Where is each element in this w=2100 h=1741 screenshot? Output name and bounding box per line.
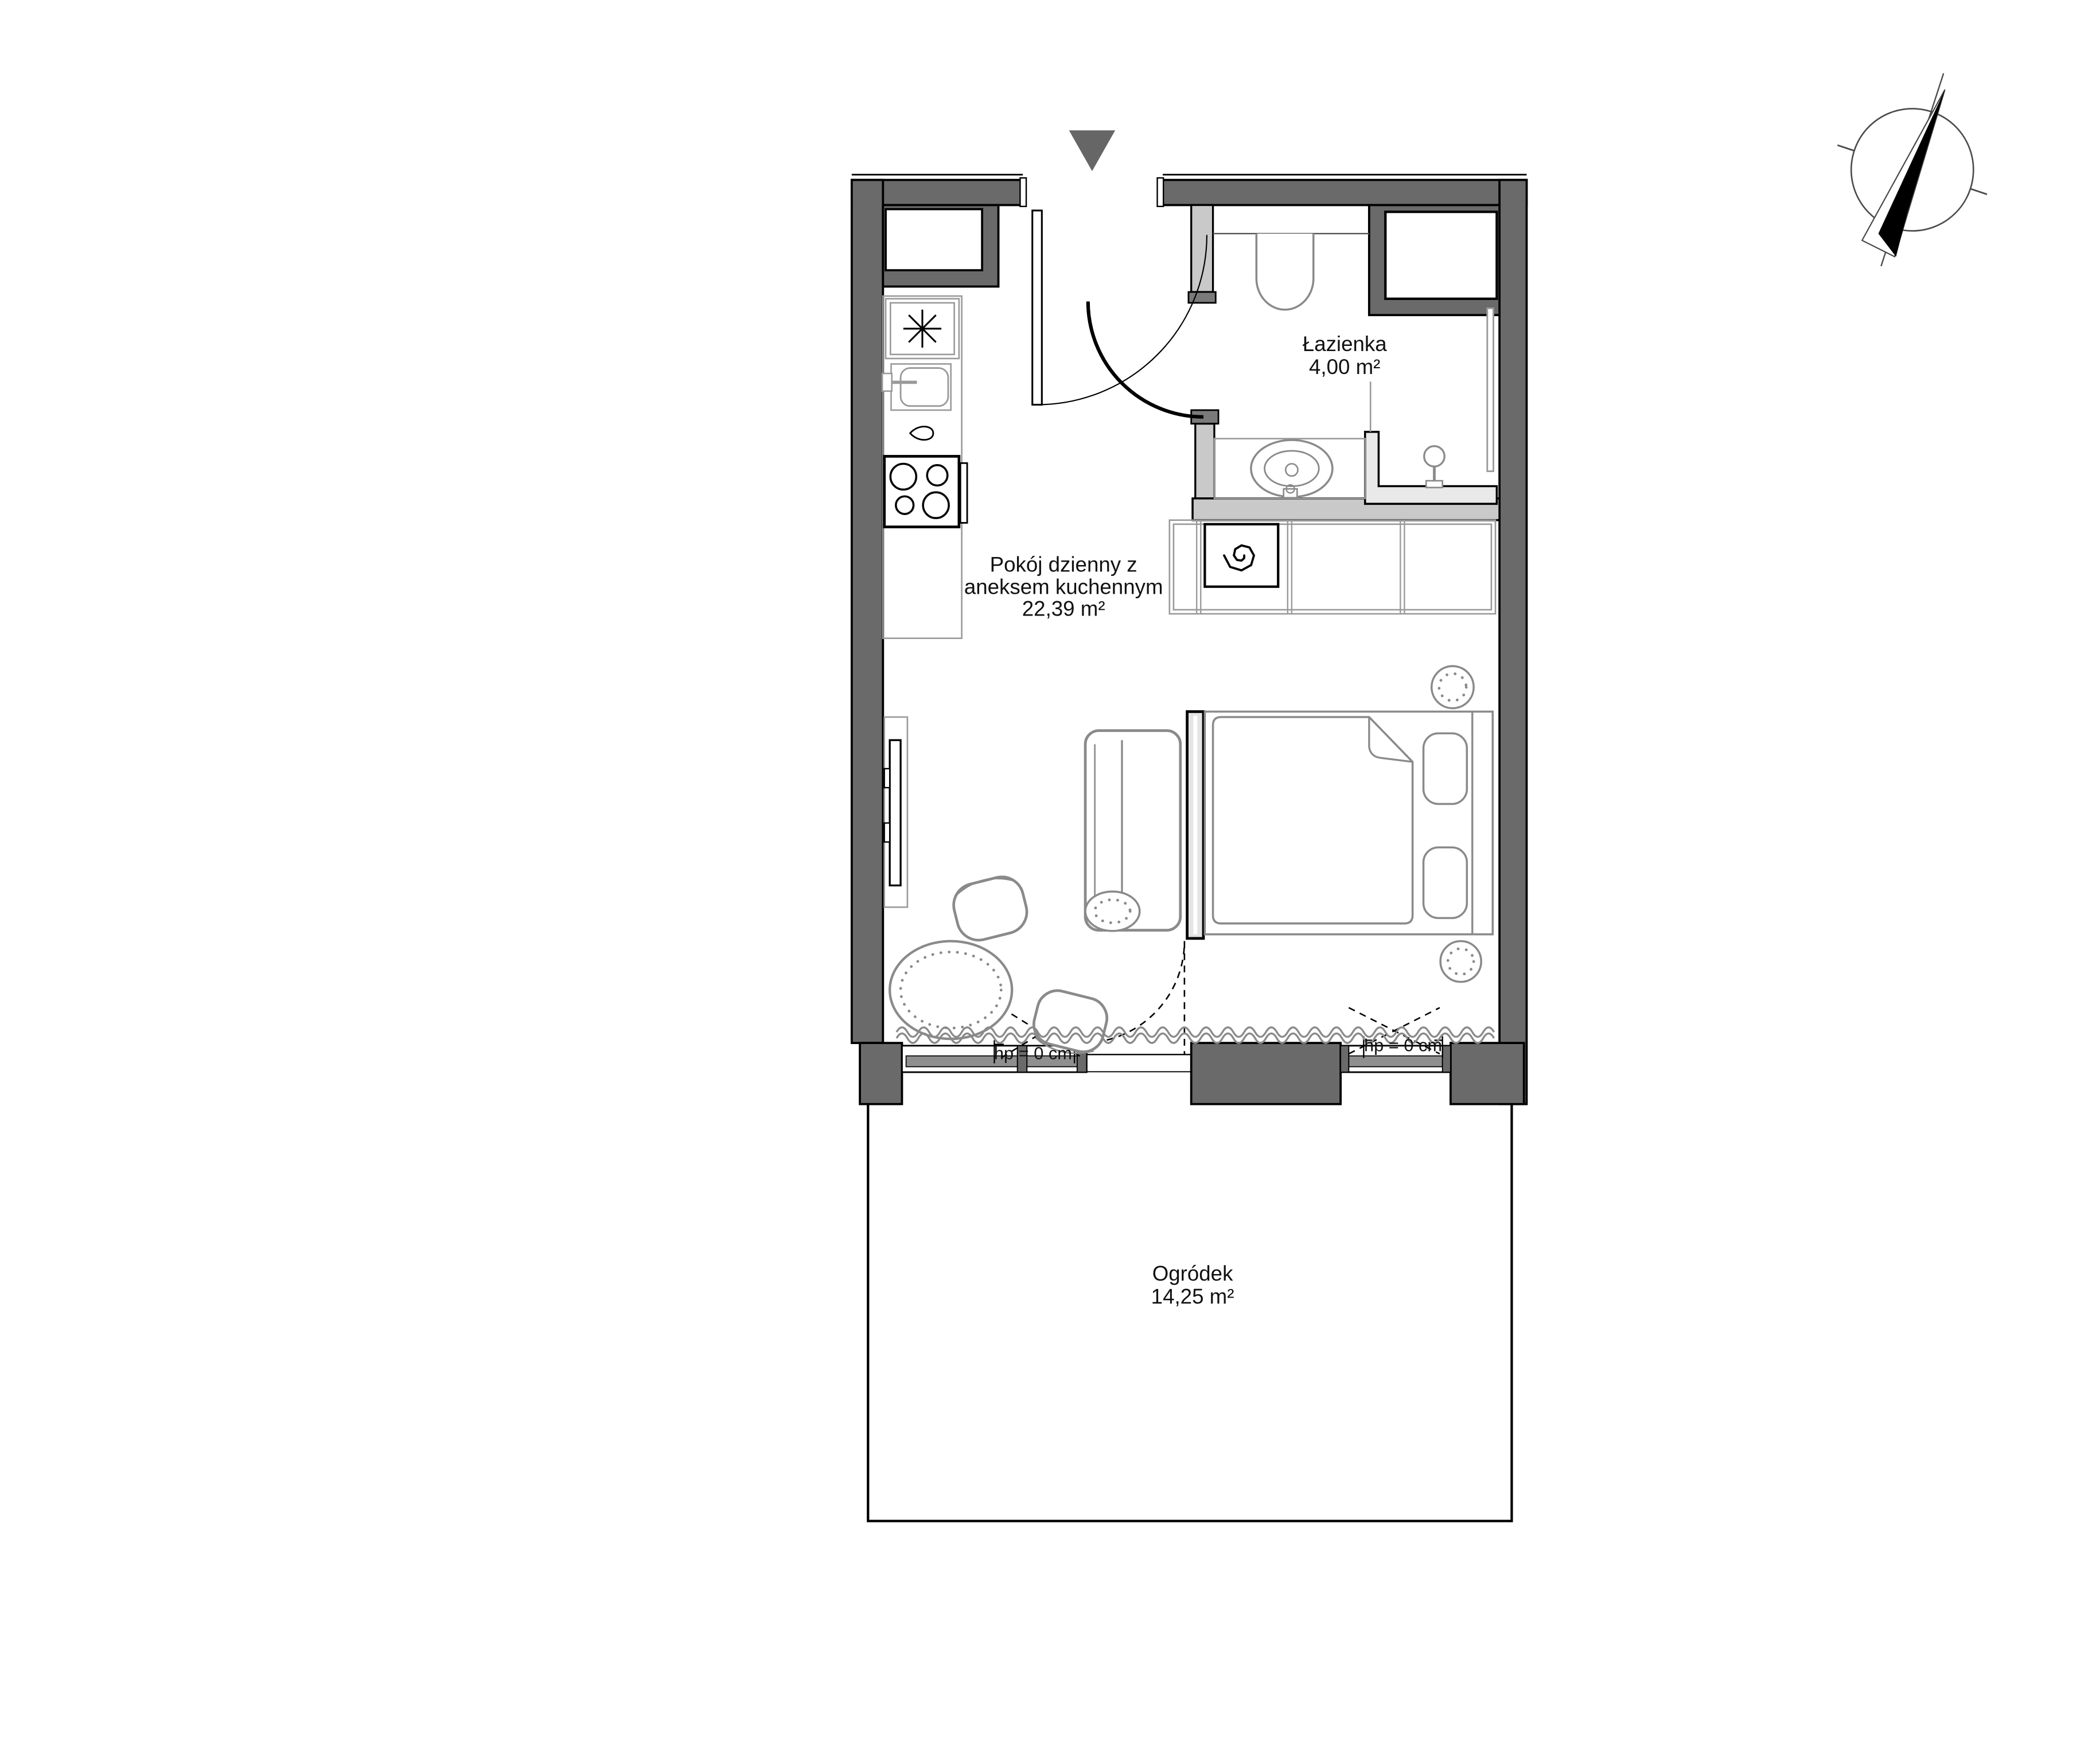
tv-mount-2 — [885, 823, 890, 842]
tv-mount-1 — [885, 769, 890, 788]
wardrobe-row — [1170, 520, 1495, 614]
entry-arrow-icon — [1069, 130, 1115, 171]
sink-tap-base — [882, 373, 892, 391]
entry-door-leaf — [1033, 211, 1042, 405]
bathroom-area: 4,00 m² — [1309, 355, 1380, 379]
entry-door-swing-arc — [1037, 235, 1207, 405]
pillow-2 — [1424, 847, 1467, 918]
compass-needle-white — [1862, 89, 1945, 256]
window-right-jamb-b — [1443, 1046, 1451, 1072]
compass-north-icon — [1837, 73, 1987, 266]
oven-handle — [960, 463, 967, 523]
chair-1 — [949, 872, 1031, 945]
window-right-sill — [1349, 1056, 1442, 1067]
garden-label: Ogródek — [1152, 1261, 1233, 1285]
kitchen — [882, 296, 967, 638]
bathroom-shaft-niche — [1385, 212, 1497, 299]
dining-table — [890, 941, 1012, 1039]
bottom-pier-center — [1191, 1043, 1341, 1104]
window-left-hp-label: hp = 0 cm — [994, 1043, 1072, 1064]
bathroom-partition-upper — [1191, 205, 1213, 292]
fridge-asterisk — [903, 310, 941, 348]
left-wall — [852, 180, 883, 1043]
bathroom-partition-lower — [1195, 424, 1214, 498]
bottom-pier-left — [860, 1043, 902, 1104]
compass-needle-black — [1879, 89, 1945, 256]
garden — [868, 1104, 1511, 1521]
bed-duvet — [1213, 717, 1413, 924]
shower-icon — [1424, 446, 1445, 467]
bottom-pier-right — [1451, 1043, 1524, 1104]
drop-icon — [910, 427, 933, 440]
entry-jamb-left — [1020, 178, 1026, 207]
washing-machine-icon — [1205, 524, 1278, 587]
floor-plan-page: Łazienka 4,00 m² Pokój dzienny z aneksem… — [0, 0, 2100, 1741]
tv-icon — [890, 740, 901, 885]
pillow-1 — [1424, 733, 1467, 804]
sink-basin — [901, 368, 948, 406]
top-wall-right — [1163, 180, 1526, 205]
floor-plan-canvas: Łazienka 4,00 m² Pokój dzienny z aneksem… — [0, 0, 2100, 1741]
bathroom-label: Łazienka — [1303, 332, 1387, 356]
shower-floor-step — [1365, 432, 1497, 504]
kitchen-shaft-niche — [886, 209, 982, 271]
compass-tick-west — [1837, 145, 1854, 151]
living-label-line1: Pokój dzienny z — [990, 553, 1137, 577]
toilet-icon — [1256, 233, 1313, 310]
shower-tap — [1426, 481, 1442, 488]
window-right-hp-label: hp = 0 cm — [1364, 1035, 1442, 1055]
living-area: 22,39 m² — [1022, 597, 1105, 621]
entry-jamb-right — [1158, 178, 1164, 207]
bathroom-door-swing-arc — [1088, 302, 1203, 417]
living-label-line2: aneksem kuchennym — [964, 575, 1163, 599]
doors — [1033, 211, 1207, 417]
bathroom-partition-upper-cap — [1189, 292, 1215, 303]
radiator-icon — [1487, 308, 1494, 471]
garden-area: 14,25 m² — [1151, 1285, 1234, 1308]
window-right-jamb-a — [1341, 1046, 1349, 1072]
compass-tick-east — [1970, 189, 1987, 194]
furniture — [885, 666, 1494, 1060]
garden-boundary — [868, 1104, 1511, 1521]
right-wall — [1499, 180, 1526, 1104]
